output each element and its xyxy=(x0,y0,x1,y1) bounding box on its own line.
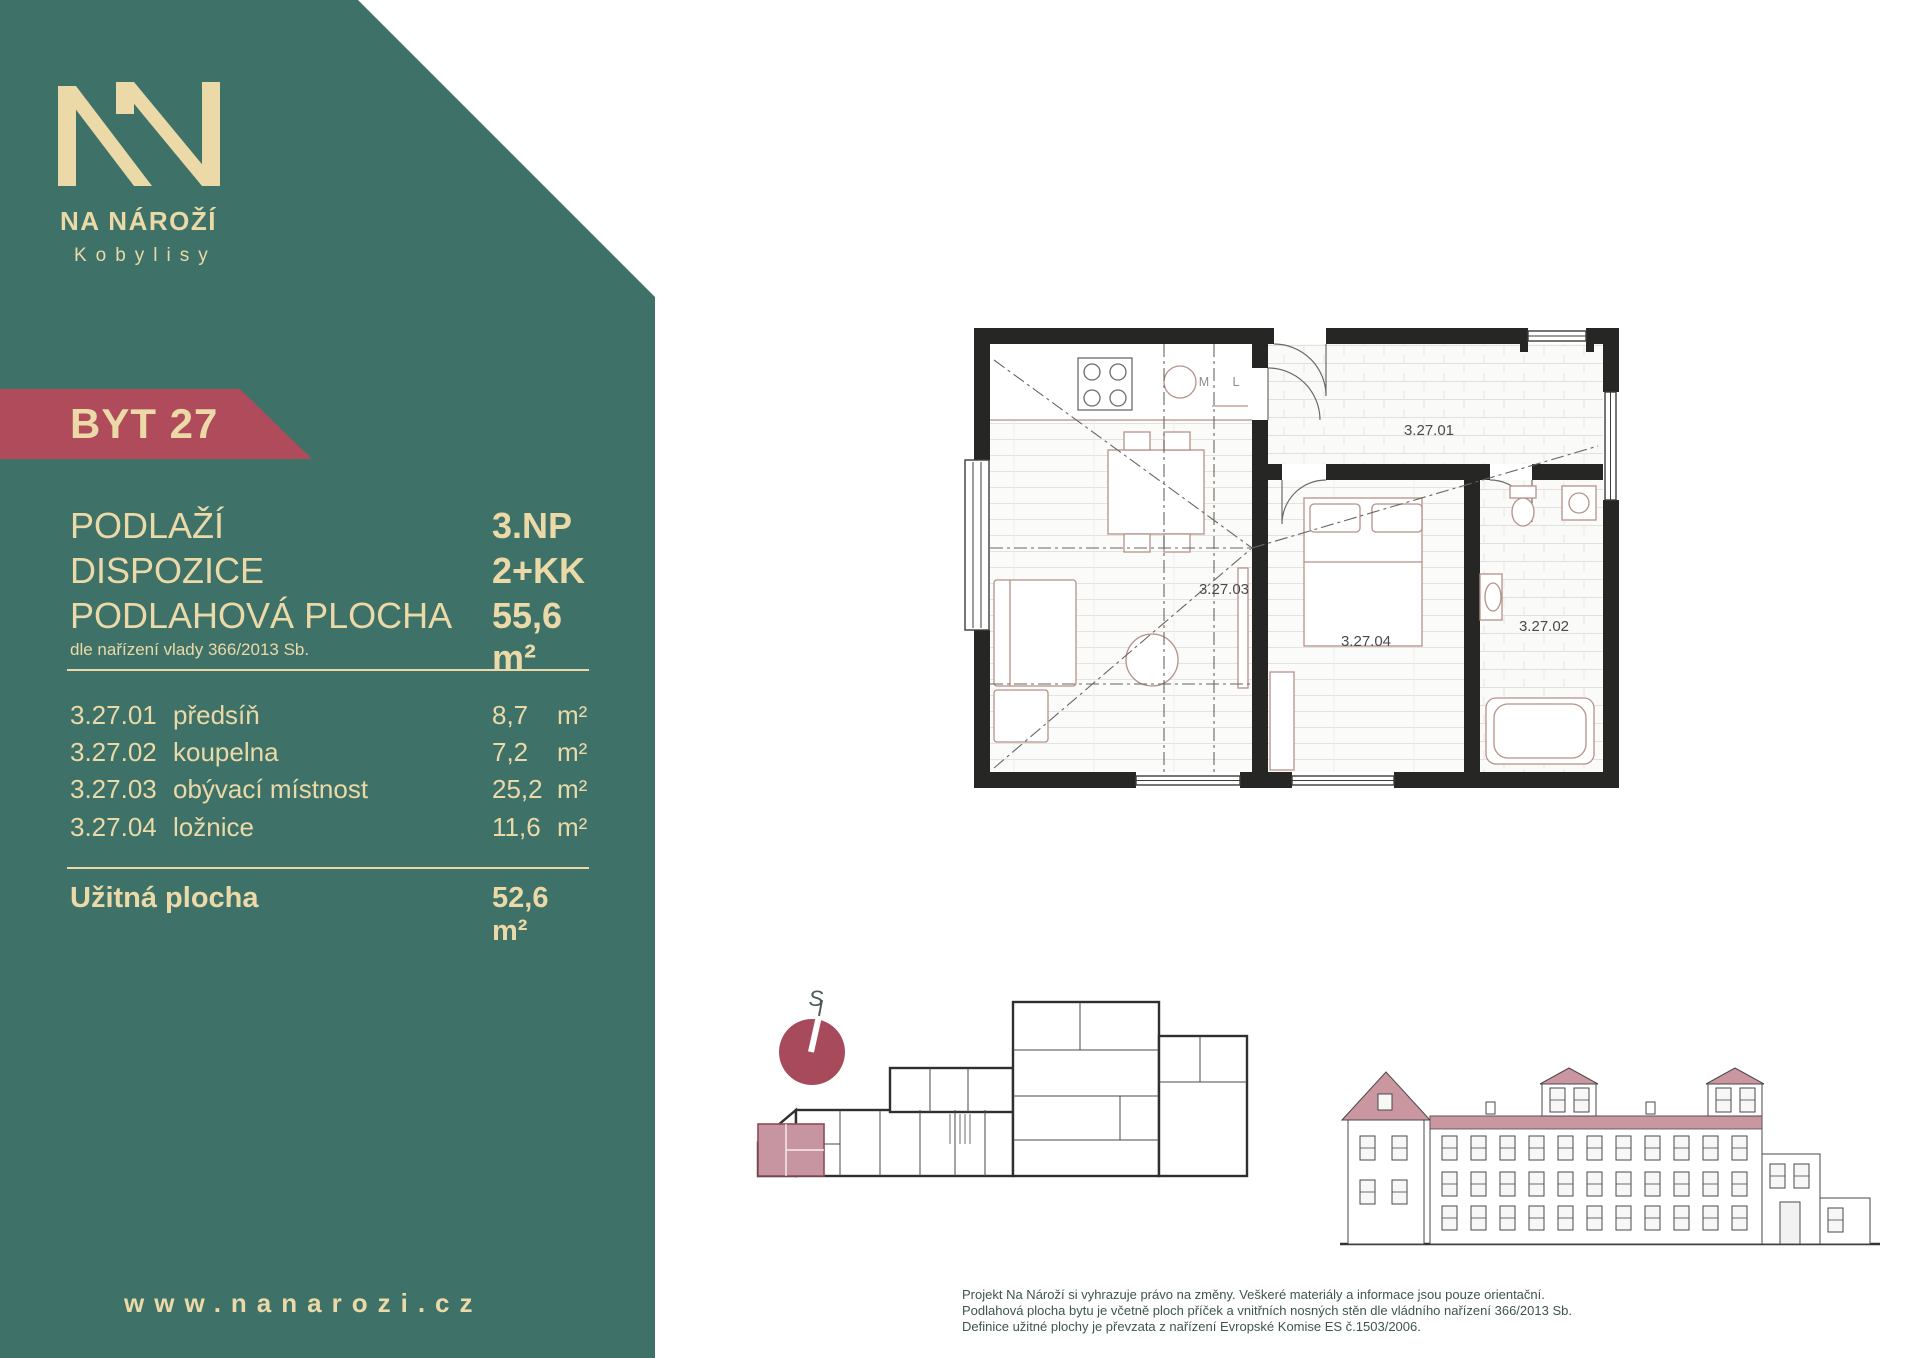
highlighted-unit xyxy=(758,1124,824,1176)
room-area: 7,2 xyxy=(492,737,528,768)
brand-name: NA NÁROŽÍ xyxy=(60,206,217,237)
room-row: 3.27.03 obývací místnost 25,2 m² xyxy=(70,774,590,811)
total-area-row: Užitná plocha 52,6 m² xyxy=(70,882,590,915)
room-area: 8,7 xyxy=(492,700,528,731)
room-name: předsíň xyxy=(173,700,260,731)
building-elevation xyxy=(1336,1056,1884,1256)
sidebar: NA NÁROŽÍ Kobylisy BYT 27 PODLAŽÍ 3.NP D… xyxy=(0,0,655,1358)
room-row: 3.27.01 předsíň 8,7 m² xyxy=(70,700,590,737)
label-living: 3.27.03 xyxy=(1199,581,1249,598)
summary-row-area: PODLAHOVÁ PLOCHA 55,6 m² xyxy=(70,595,590,640)
coffee-table xyxy=(1126,634,1178,686)
total-area-label: Užitná plocha xyxy=(70,882,259,914)
summary-label: PODLAŽÍ xyxy=(70,505,224,546)
toilet xyxy=(1510,486,1536,498)
elevation-main-body xyxy=(1430,1068,1764,1244)
room-name: koupelna xyxy=(173,737,279,768)
disclaimer: Projekt Na Nároží si vyhrazuje právo na … xyxy=(962,1287,1642,1335)
brand-logo-nn-icon xyxy=(58,80,220,192)
room-area-unit: m² xyxy=(557,812,587,843)
label-dishwasher: M xyxy=(1199,375,1209,389)
label-hall: 3.27.01 xyxy=(1404,422,1454,439)
sofa xyxy=(994,580,1076,686)
room-name: obývací místnost xyxy=(173,774,368,805)
building-key-plan xyxy=(750,992,1255,1192)
unit-badge-label: BYT 27 xyxy=(70,389,218,459)
summary-label: DISPOZICE xyxy=(70,550,264,591)
summary-row-floor: PODLAŽÍ 3.NP xyxy=(70,505,590,550)
room-code: 3.27.04 xyxy=(70,812,157,843)
room-area-unit: m² xyxy=(557,737,587,768)
summary-label: PODLAHOVÁ PLOCHA xyxy=(70,595,452,636)
wardrobe xyxy=(1270,672,1294,770)
room-row: 3.27.04 ložnice 11,6 m² xyxy=(70,812,590,849)
bathtub xyxy=(1486,698,1594,764)
label-bathroom: 3.27.02 xyxy=(1519,618,1569,635)
brochure-page: NA NÁROŽÍ Kobylisy BYT 27 PODLAŽÍ 3.NP D… xyxy=(0,0,1920,1358)
elevation-left-gable xyxy=(1342,1072,1430,1244)
room-code: 3.27.02 xyxy=(70,737,157,768)
disclaimer-line: Projekt Na Nároží si vyhrazuje právo na … xyxy=(962,1287,1642,1303)
website-url: www.nanarozi.cz xyxy=(124,1288,483,1319)
elevation-right-annex xyxy=(1762,1154,1870,1244)
room-code: 3.27.01 xyxy=(70,700,157,731)
summary-value: 2+KK xyxy=(492,550,585,592)
regulation-note: dle nařízení vlady 366/2013 Sb. xyxy=(70,640,309,660)
summary-value: 3.NP xyxy=(492,505,572,547)
room-name: ložnice xyxy=(173,812,254,843)
room-area: 25,2 xyxy=(492,774,543,805)
room-area: 11,6 xyxy=(492,812,541,843)
washbasin xyxy=(1480,574,1502,620)
disclaimer-line: Podlahová plocha bytu je včetně ploch př… xyxy=(962,1303,1642,1319)
summary-value: 55,6 m² xyxy=(492,595,590,679)
total-area-value: 52,6 m² xyxy=(492,882,590,948)
label-fridge: L xyxy=(1233,375,1240,389)
room-row: 3.27.02 koupelna 7,2 m² xyxy=(70,737,590,774)
dining-table xyxy=(1108,450,1204,534)
disclaimer-line: Definice užitné plochy je převzata z nař… xyxy=(962,1319,1642,1335)
divider xyxy=(67,867,589,869)
unit-badge: BYT 27 xyxy=(0,389,312,459)
divider xyxy=(67,669,589,671)
summary-row-layout: DISPOZICE 2+KK xyxy=(70,550,590,595)
label-bedroom: 3.27.04 xyxy=(1341,633,1391,650)
washing-machine xyxy=(1562,486,1596,520)
brand-subtitle: Kobylisy xyxy=(74,245,217,267)
room-code: 3.27.03 xyxy=(70,774,157,805)
apartment-floorplan: 3.27.01 3.27.03 3.27.04 3.27.02 M L xyxy=(962,322,1622,794)
room-area-unit: m² xyxy=(557,774,587,805)
room-area-unit: m² xyxy=(557,700,587,731)
